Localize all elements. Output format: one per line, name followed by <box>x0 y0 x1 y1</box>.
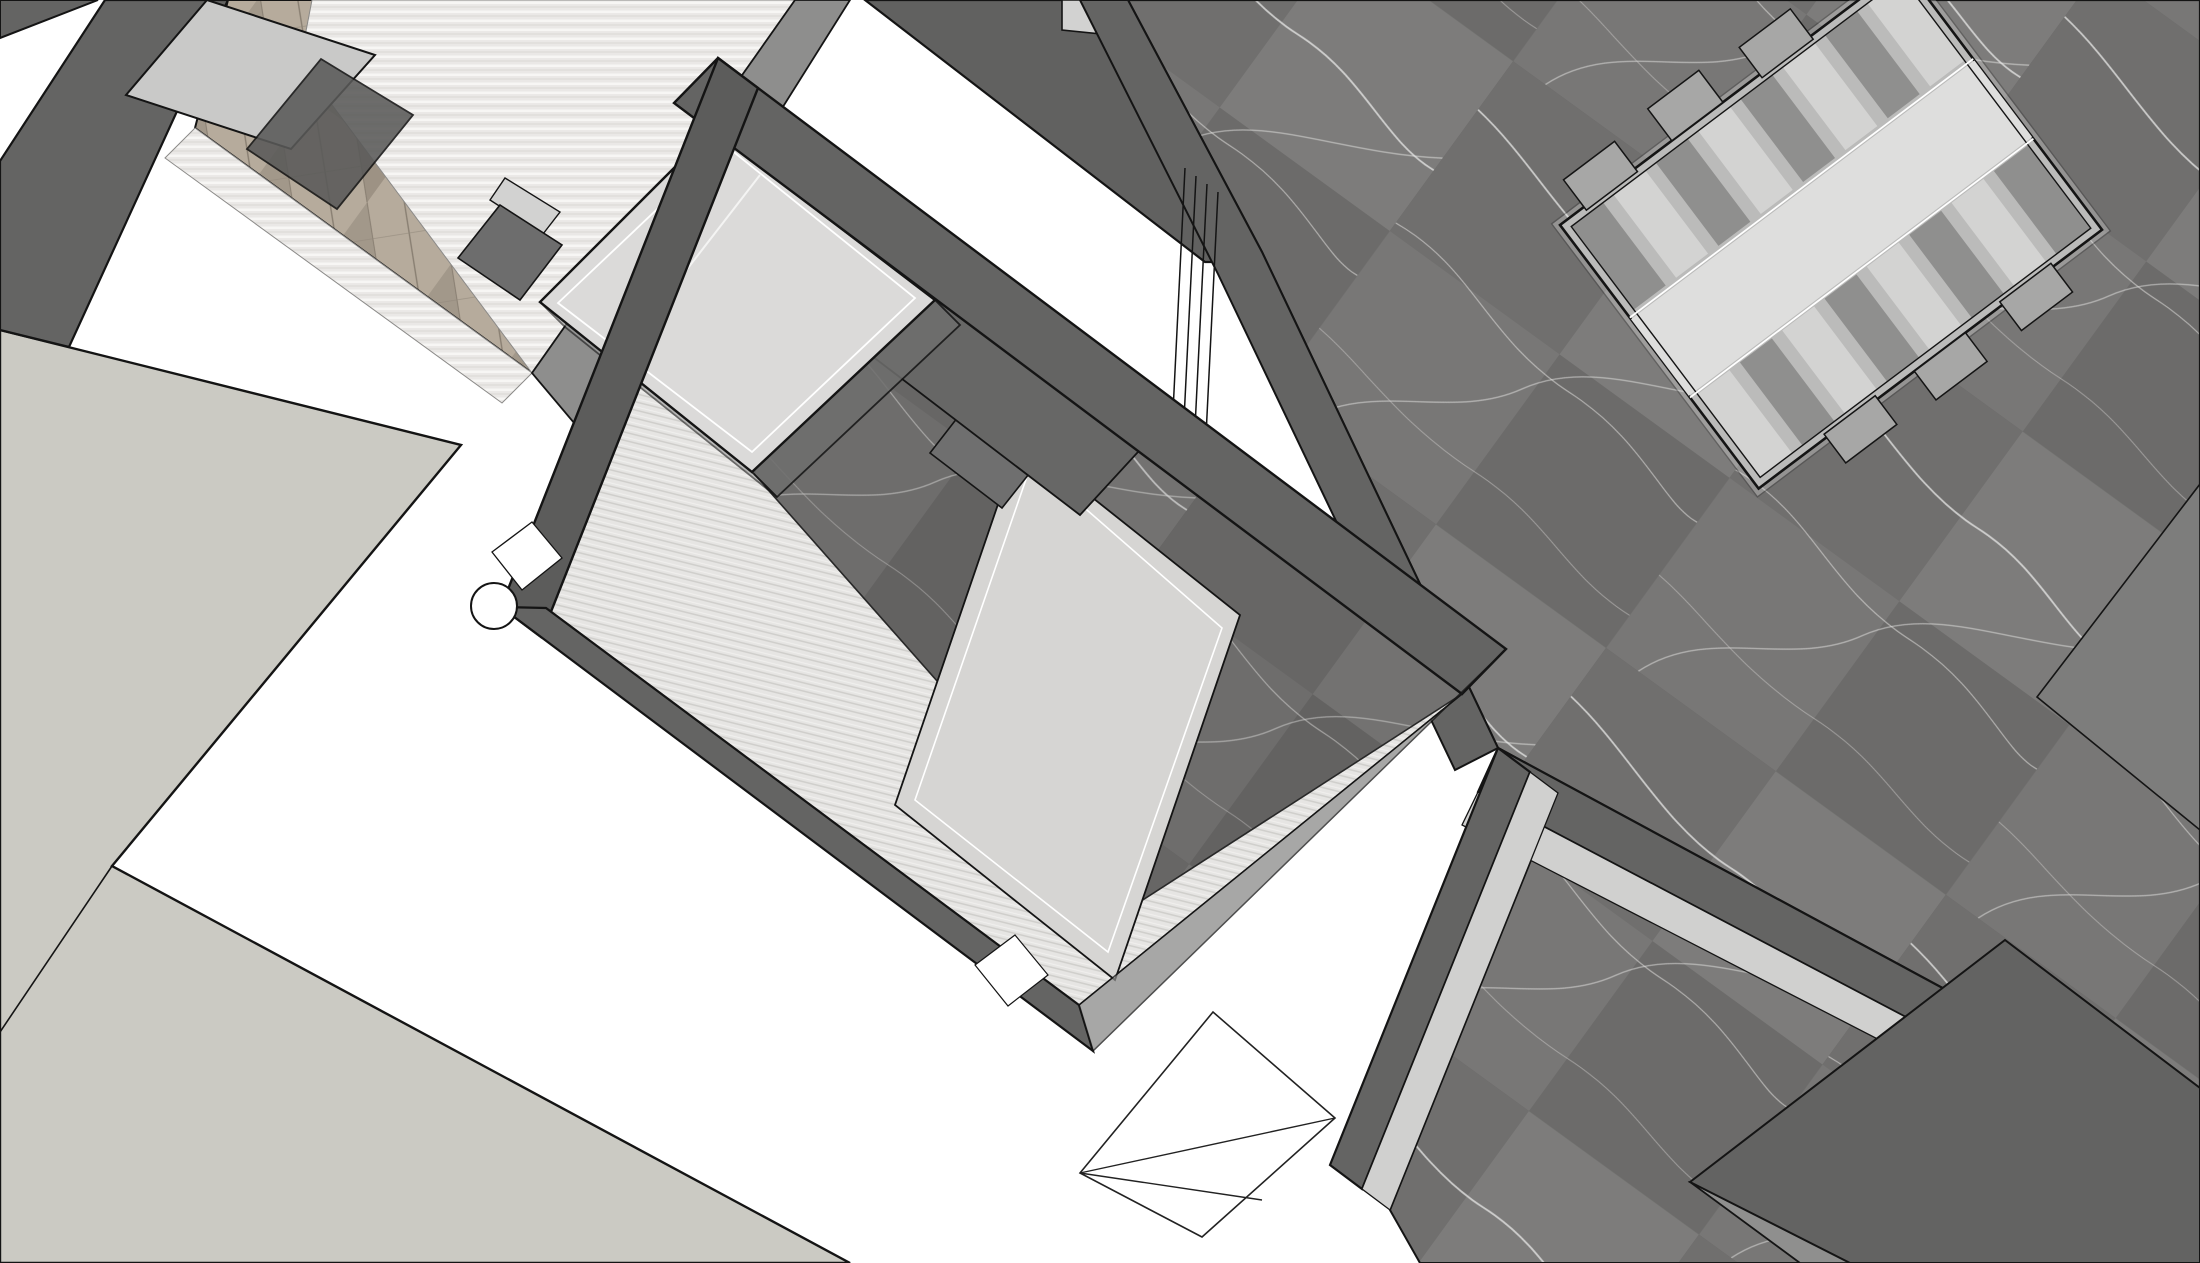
scene-canvas <box>0 0 2200 1263</box>
plumbing-circle-symbol <box>471 583 517 629</box>
model-viewport[interactable] <box>0 0 2200 1263</box>
